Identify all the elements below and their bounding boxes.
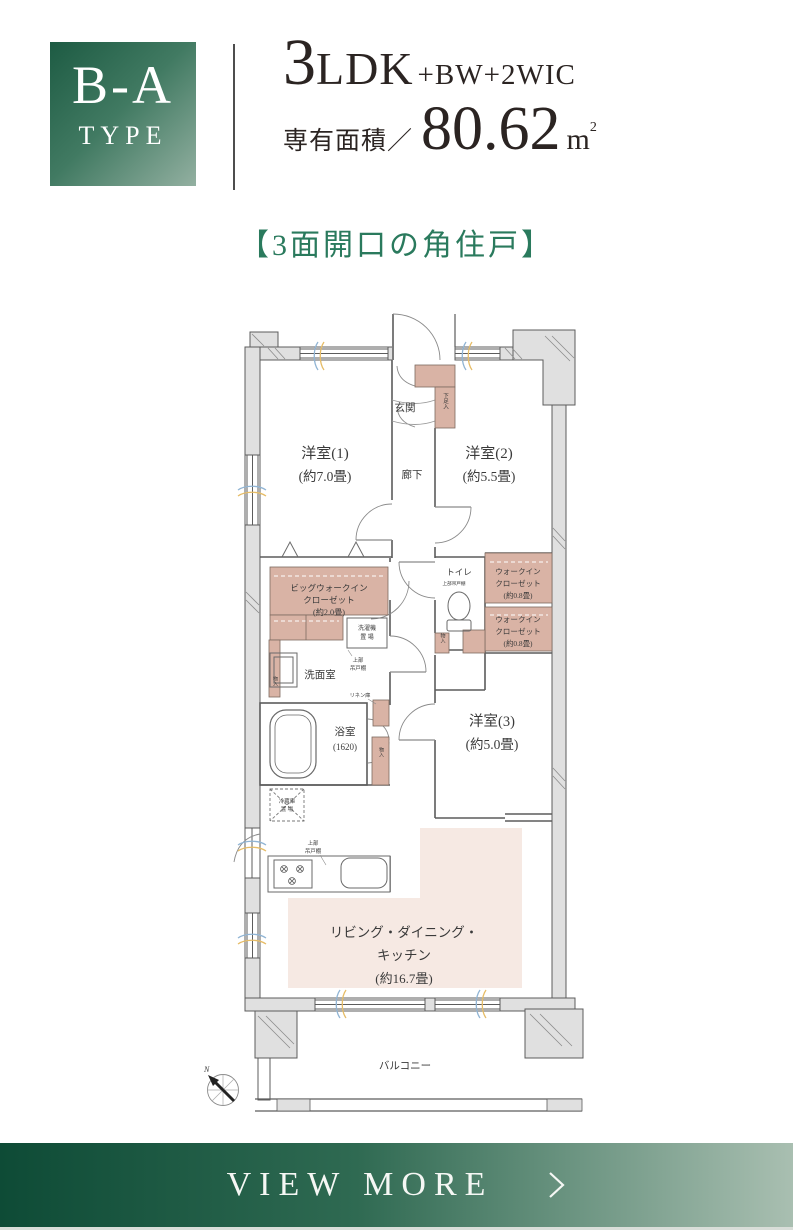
genkan-label: 玄関 [395, 401, 416, 414]
catch-copy: 【3面開口の角住戸】 [0, 220, 793, 264]
wic2-line2: クローゼット [495, 626, 541, 636]
room3-size: (約5.0畳) [466, 737, 519, 752]
washroom-cabinet-line2: 吊戸棚 [350, 664, 366, 672]
pillar-balcony-right [525, 1009, 583, 1058]
big-wic-line2: クローゼット [303, 594, 355, 605]
bath-name: 浴室 [335, 725, 356, 738]
compass-icon: N [203, 1065, 239, 1106]
big-wic-line3: (約2.0畳) [313, 607, 345, 617]
unit-type-code: B-A [50, 56, 196, 115]
kitchen-cabinet-line1: 上部 [308, 839, 319, 847]
wic1-line1: ウォークイン [495, 567, 541, 576]
room2-size: (約5.5畳) [463, 469, 516, 484]
washer-line1: 洗濯機 [358, 624, 376, 632]
room1-name: 洋室(1) [301, 445, 349, 462]
ldk-area-fill [288, 828, 522, 988]
layout-suffix: +BW+2WIC [418, 59, 576, 92]
area-value: 80.62 [421, 98, 561, 160]
bathtub [270, 710, 316, 778]
header-divider [233, 44, 235, 190]
washroom-cabinet-line1: 上部 [353, 656, 364, 664]
floor-plan-svg: N 洋室(1) (約7.0畳) 洋室(2) (約5.5畳) 玄関 廊下 下足入 … [200, 300, 640, 1120]
ldk-line1: リビング・ダイニング・ [330, 925, 479, 940]
closet-hangers [282, 542, 364, 557]
linen-label: リネン庫 [350, 691, 371, 699]
wic2-line1: ウォークイン [495, 615, 541, 624]
layout-number: 3 [283, 30, 316, 96]
fridge-line1: 冷蔵庫 [279, 797, 296, 805]
room2-name: 洋室(2) [465, 445, 513, 462]
kitchen-counter [268, 856, 390, 892]
room1-size: (約7.0畳) [299, 469, 352, 484]
sink [341, 858, 387, 888]
wic2-line3: (約0.8畳) [504, 639, 533, 648]
area-label: 専有面積／ [283, 121, 413, 157]
shoe-box-label: 下足入 [442, 393, 449, 410]
fridge-space [270, 789, 304, 821]
hall-storage-label: 物入 [440, 632, 446, 643]
washroom-storage-label: 物入 [272, 675, 278, 686]
area-unit: m2 [567, 120, 597, 157]
entrance-door [392, 314, 455, 362]
fridge-line2: 置 場 [281, 805, 294, 813]
layout-row: 3LDK+BW+2WIC [283, 30, 597, 96]
toilet-label: トイレ [446, 567, 472, 577]
bath-size: (1620) [333, 742, 357, 752]
washroom-label: 洗面室 [304, 668, 336, 681]
bath-side-storage [372, 737, 389, 785]
room3-name: 洋室(3) [469, 713, 515, 730]
area-row: 専有面積／ 80.62 m2 [283, 98, 597, 160]
big-wic-line1: ビッグウォークイン [290, 582, 367, 593]
ldk-line2: キッチン [377, 948, 431, 963]
washer-line2: 置 場 [360, 633, 374, 641]
stove [274, 860, 312, 888]
unit-type-badge: B-A TYPE [50, 42, 196, 186]
compass-north-label: N [203, 1065, 210, 1074]
toilet-upper-cabinet-label: 上部吊戸棚 [443, 580, 466, 587]
wic1-line2: クローゼット [495, 578, 541, 588]
chevron-right-icon [548, 1170, 566, 1200]
area-exponent: 2 [590, 120, 597, 135]
ldk-line3: (約16.7畳) [375, 971, 432, 986]
balcony-label: バルコニー [379, 1060, 431, 1072]
layout-type: LDK [316, 42, 414, 95]
view-more-label: VIEW MORE [227, 1166, 494, 1204]
floor-plan: N 洋室(1) (約7.0畳) 洋室(2) (約5.5畳) 玄関 廊下 下足入 … [200, 300, 640, 1120]
view-more-button[interactable]: VIEW MORE [0, 1143, 793, 1227]
unit-spec: 3LDK+BW+2WIC 専有面積／ 80.62 m2 [283, 30, 597, 160]
unit-type-word: TYPE [50, 121, 196, 151]
wic1-line3: (約0.8畳) [504, 591, 533, 600]
hallway-label: 廊下 [402, 468, 423, 481]
pillar-top-right [513, 330, 575, 405]
bath-storage-label: 物入 [378, 746, 384, 757]
toilet-fixture [447, 592, 471, 631]
kitchen-cabinet-line2: 吊戸棚 [305, 847, 321, 855]
